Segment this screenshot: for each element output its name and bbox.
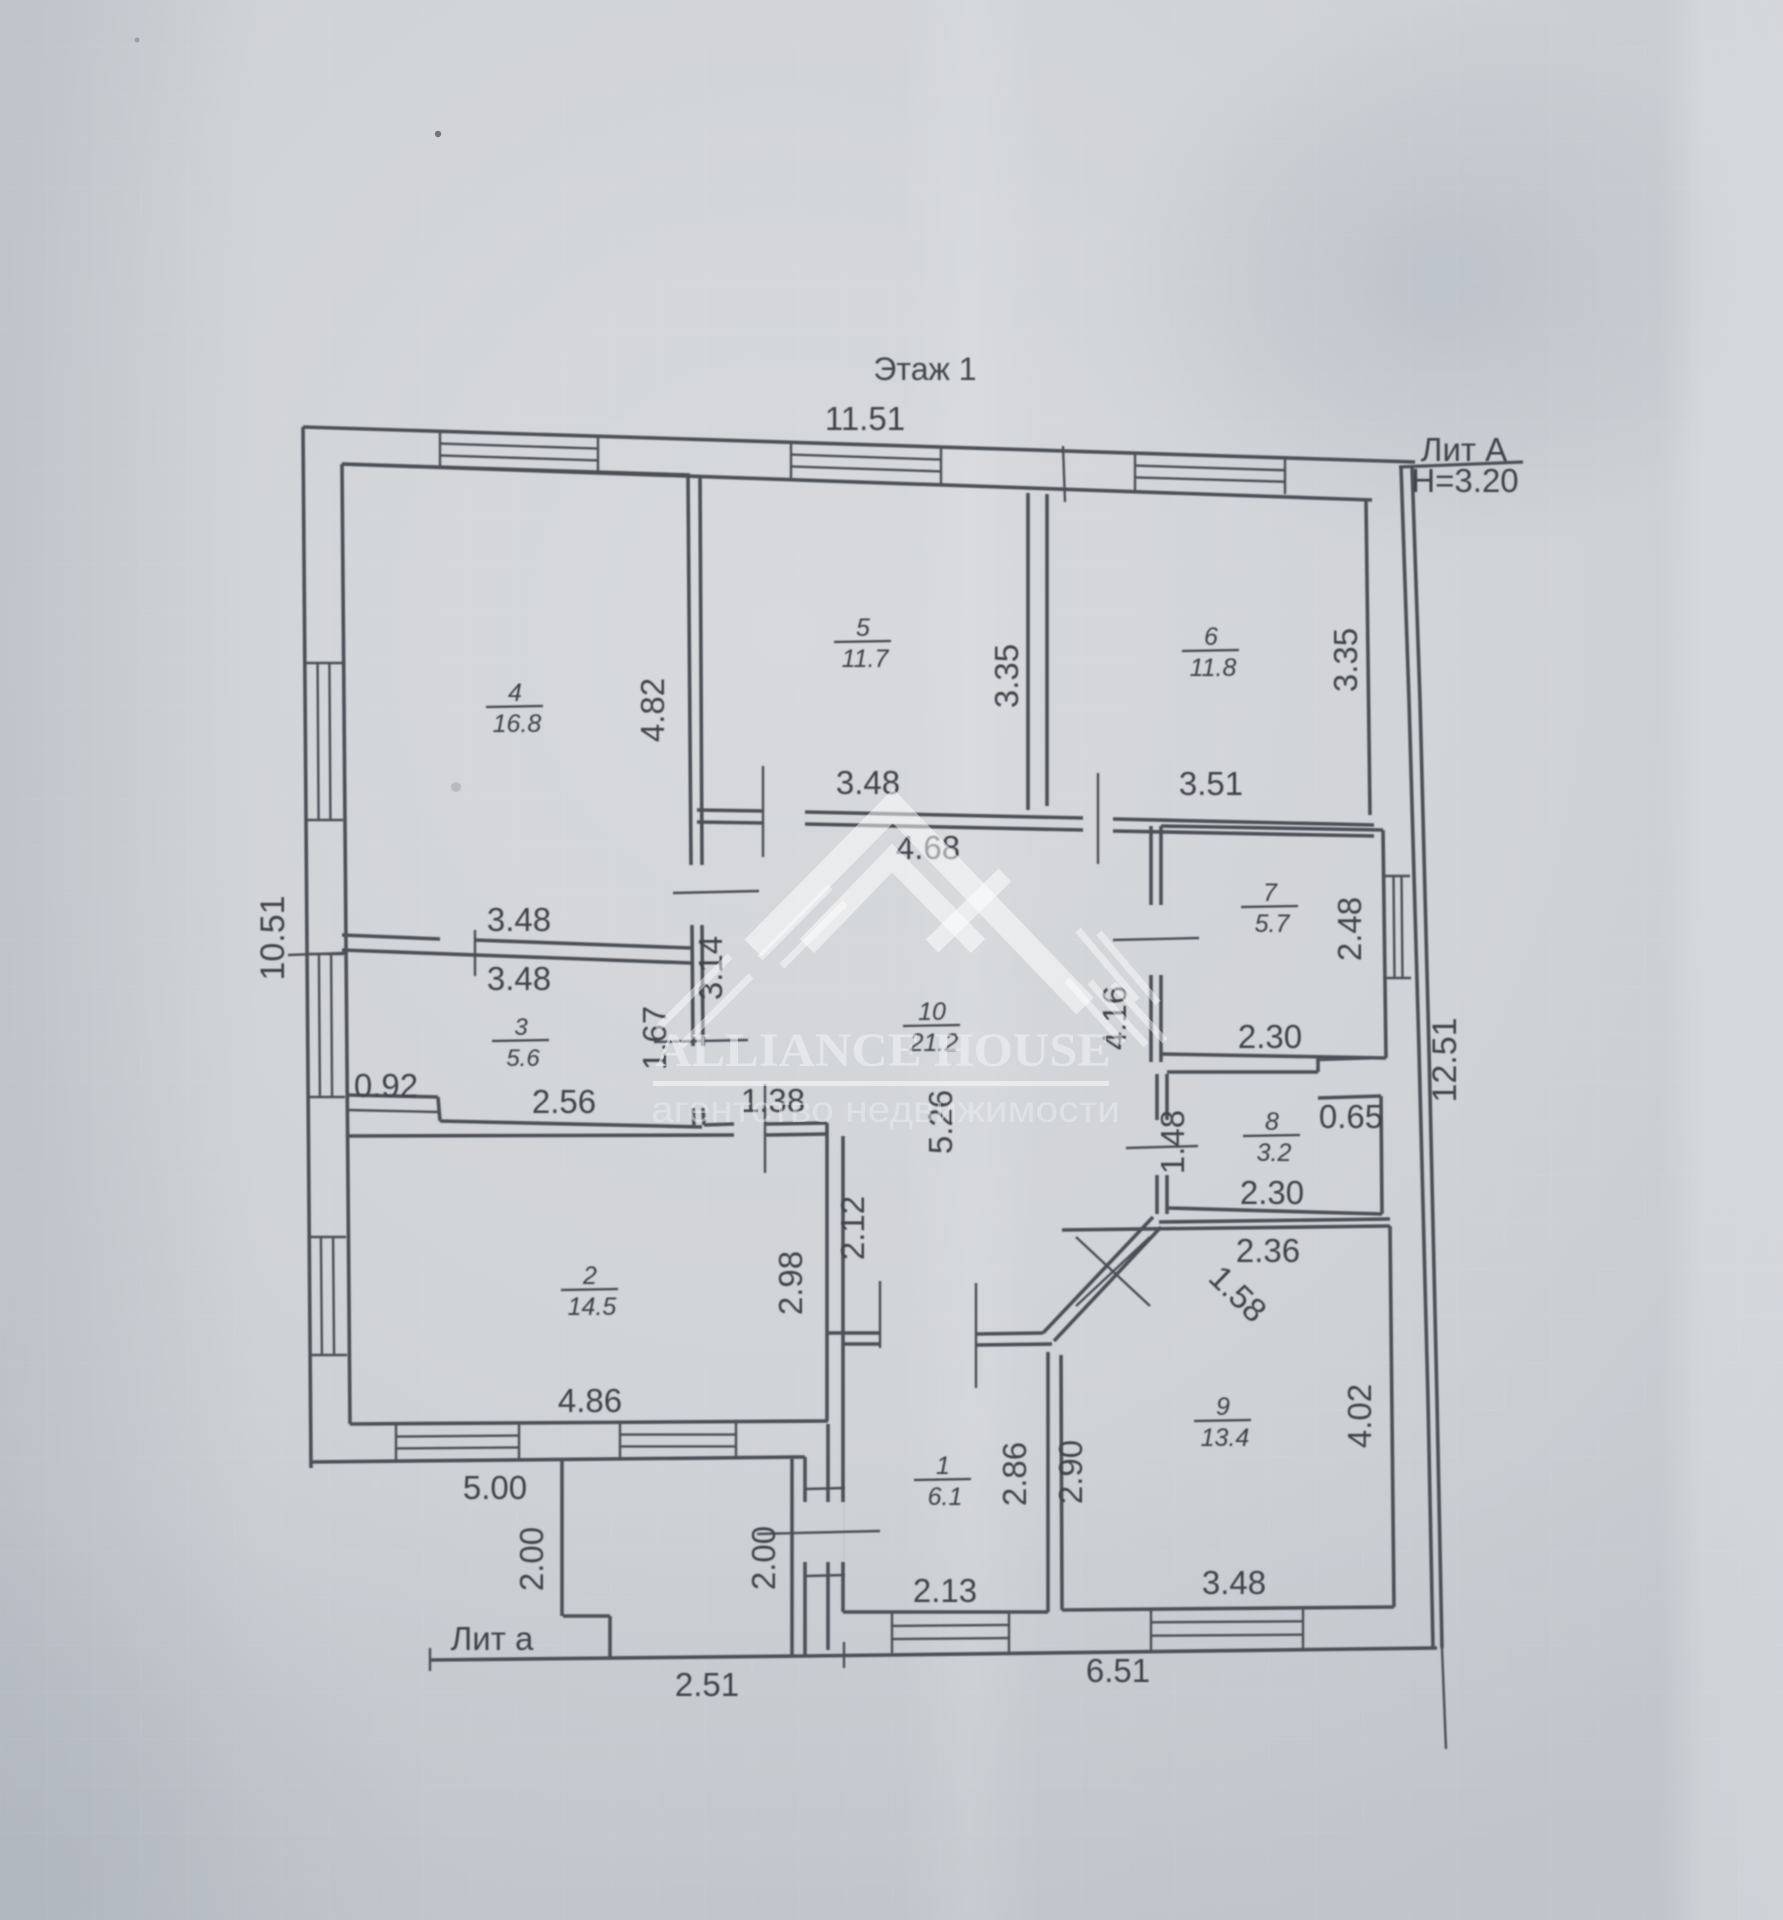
svg-text:3.48: 3.48 xyxy=(1202,1564,1266,1601)
svg-text:1: 1 xyxy=(936,1452,950,1480)
svg-text:16.8: 16.8 xyxy=(493,710,542,738)
svg-text:2.13: 2.13 xyxy=(913,1572,977,1609)
svg-text:0.92: 0.92 xyxy=(354,1067,418,1104)
svg-text:3.48: 3.48 xyxy=(487,901,551,938)
svg-text:3: 3 xyxy=(514,1014,528,1041)
svg-text:2.12: 2.12 xyxy=(834,1196,871,1260)
svg-text:2.00: 2.00 xyxy=(513,1527,550,1591)
svg-text:ALLIANCE HOUSE: ALLIANCE HOUSE xyxy=(655,1024,1111,1077)
svg-text:13.4: 13.4 xyxy=(1201,1424,1250,1452)
svg-text:6.51: 6.51 xyxy=(1086,1652,1150,1689)
svg-text:3.48: 3.48 xyxy=(487,960,551,997)
svg-text:2.48: 2.48 xyxy=(1331,897,1368,961)
svg-text:14.5: 14.5 xyxy=(568,1293,617,1321)
svg-text:Н=3.20: Н=3.20 xyxy=(1411,462,1518,499)
svg-text:11.51: 11.51 xyxy=(825,400,905,437)
svg-text:3.35: 3.35 xyxy=(1327,628,1364,692)
svg-text:10: 10 xyxy=(918,998,946,1026)
svg-text:11.8: 11.8 xyxy=(1190,654,1237,682)
svg-text:9: 9 xyxy=(1216,1393,1230,1421)
svg-text:4.82: 4.82 xyxy=(634,678,671,742)
svg-text:7: 7 xyxy=(1263,879,1278,907)
svg-text:1.48: 1.48 xyxy=(1154,1110,1191,1174)
svg-text:2.36: 2.36 xyxy=(1236,1232,1300,1269)
svg-text:5: 5 xyxy=(856,614,870,642)
svg-text:2.30: 2.30 xyxy=(1238,1018,1302,1055)
svg-text:агентство недвижимости: агентство недвижимости xyxy=(651,1089,1120,1130)
svg-text:2.00: 2.00 xyxy=(745,1526,782,1590)
svg-text:6.1: 6.1 xyxy=(928,1483,963,1511)
svg-text:3.51: 3.51 xyxy=(1179,765,1243,802)
svg-text:3.35: 3.35 xyxy=(988,644,1025,708)
svg-text:2: 2 xyxy=(582,1262,597,1290)
svg-text:5.6: 5.6 xyxy=(506,1045,540,1072)
svg-text:4.86: 4.86 xyxy=(558,1382,622,1419)
svg-text:6: 6 xyxy=(1204,623,1218,651)
svg-text:4.02: 4.02 xyxy=(1341,1384,1378,1448)
svg-text:2.56: 2.56 xyxy=(532,1083,596,1120)
svg-text:11.7: 11.7 xyxy=(842,645,890,673)
svg-text:2.98: 2.98 xyxy=(772,1251,809,1315)
svg-text:5.00: 5.00 xyxy=(463,1469,527,1506)
svg-text:2.30: 2.30 xyxy=(1240,1174,1304,1211)
svg-text:12.51: 12.51 xyxy=(1426,1017,1464,1102)
svg-text:2.86: 2.86 xyxy=(996,1442,1033,1506)
svg-text:Этаж 1: Этаж 1 xyxy=(873,351,976,387)
svg-text:Лит а: Лит а xyxy=(451,1620,534,1657)
svg-text:3.2: 3.2 xyxy=(1257,1139,1292,1167)
svg-text:4: 4 xyxy=(508,679,522,707)
svg-text:0.65: 0.65 xyxy=(1319,1098,1383,1135)
svg-text:8: 8 xyxy=(1265,1108,1279,1136)
svg-text:2.51: 2.51 xyxy=(675,1666,739,1703)
svg-text:2.90: 2.90 xyxy=(1052,1440,1089,1504)
svg-text:10.51: 10.51 xyxy=(254,895,292,980)
svg-text:5.7: 5.7 xyxy=(1255,910,1291,938)
